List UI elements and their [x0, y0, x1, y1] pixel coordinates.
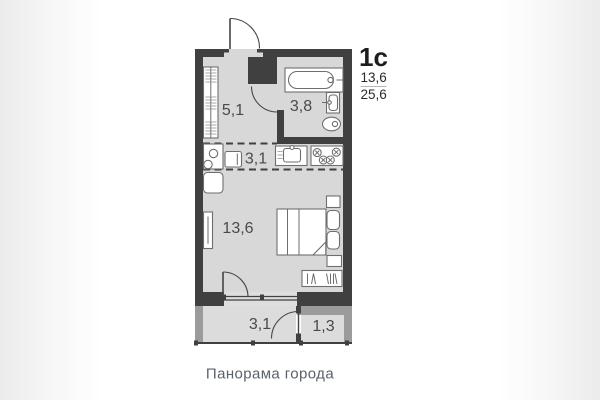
room-label-kitchen: 3,1	[245, 151, 267, 168]
balcony-wall-top-right	[297, 306, 344, 315]
radiator	[204, 212, 213, 249]
room-label-balcony: 3,1	[249, 316, 271, 333]
duct-block	[248, 57, 277, 84]
kitchen-hook-panel	[204, 144, 224, 169]
glazing-mullion	[251, 341, 255, 346]
bed	[277, 209, 326, 255]
stove	[311, 146, 343, 166]
fridge	[204, 173, 224, 194]
dresser	[302, 271, 342, 287]
living-area-value: 13,6	[361, 70, 387, 85]
glazing-mullion	[345, 341, 349, 346]
plan-info: 1с 13,6 25,6	[359, 42, 388, 102]
room-label-bathroom: 3,8	[290, 98, 312, 115]
bathtub	[285, 68, 343, 92]
view-caption: Панорама города	[206, 366, 334, 383]
apartment-plan-card: 5,1 3,8 3,1 13,6 3,1 1,3 1с 13,6 25,6 Па…	[0, 0, 600, 400]
glazing-mullion	[194, 341, 198, 346]
room-label-hallway: 5,1	[222, 102, 244, 119]
nightstand-top	[327, 196, 341, 208]
plan-type-title: 1с	[359, 42, 388, 72]
room-label-living-room: 13,6	[222, 220, 253, 237]
balcony-wall-left	[195, 306, 203, 343]
bathroom-wall-bottom	[277, 137, 343, 144]
nightstand-bottom	[327, 256, 342, 267]
window-mullion	[260, 295, 264, 301]
hallway-wardrobe	[204, 67, 219, 138]
total-area-value: 25,6	[361, 87, 387, 102]
window-mullion	[299, 295, 303, 301]
glazing-mullion	[299, 341, 303, 346]
toilet	[323, 117, 341, 131]
entry-niche-inner	[224, 53, 263, 58]
room-label-balcony-side: 1,3	[312, 318, 334, 335]
kitchen-sink	[276, 146, 308, 166]
washing-machine	[225, 152, 242, 168]
entry-niche-outer	[229, 49, 257, 53]
floor-plan-image: 5,1 3,8 3,1 13,6 3,1 1,3 1с 13,6 25,6 Па…	[0, 0, 600, 400]
balcony-wall-right	[344, 306, 352, 343]
